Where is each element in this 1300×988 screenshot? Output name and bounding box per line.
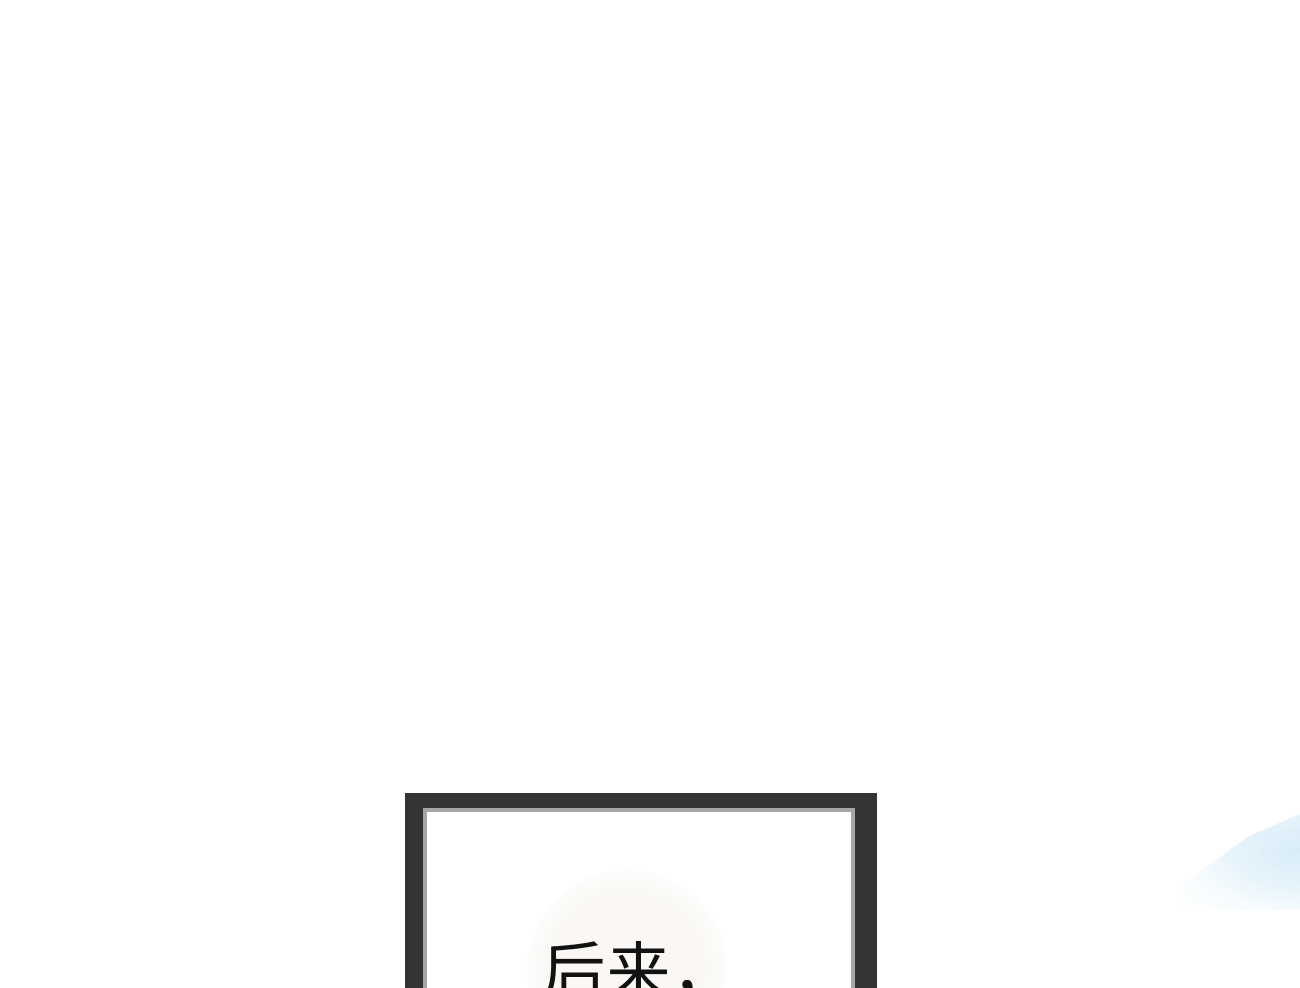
comic-panel: 后来， xyxy=(405,793,877,988)
comic-panel-interior: 后来， xyxy=(423,808,855,988)
webtoon-page: { "page": { "kind": "webtoon-scroll-segm… xyxy=(0,0,1300,988)
caption-text: 后来， xyxy=(427,938,851,988)
comic-strip-canvas: 后来， xyxy=(0,0,1300,988)
sky-artwork-fragment xyxy=(1178,810,1300,910)
